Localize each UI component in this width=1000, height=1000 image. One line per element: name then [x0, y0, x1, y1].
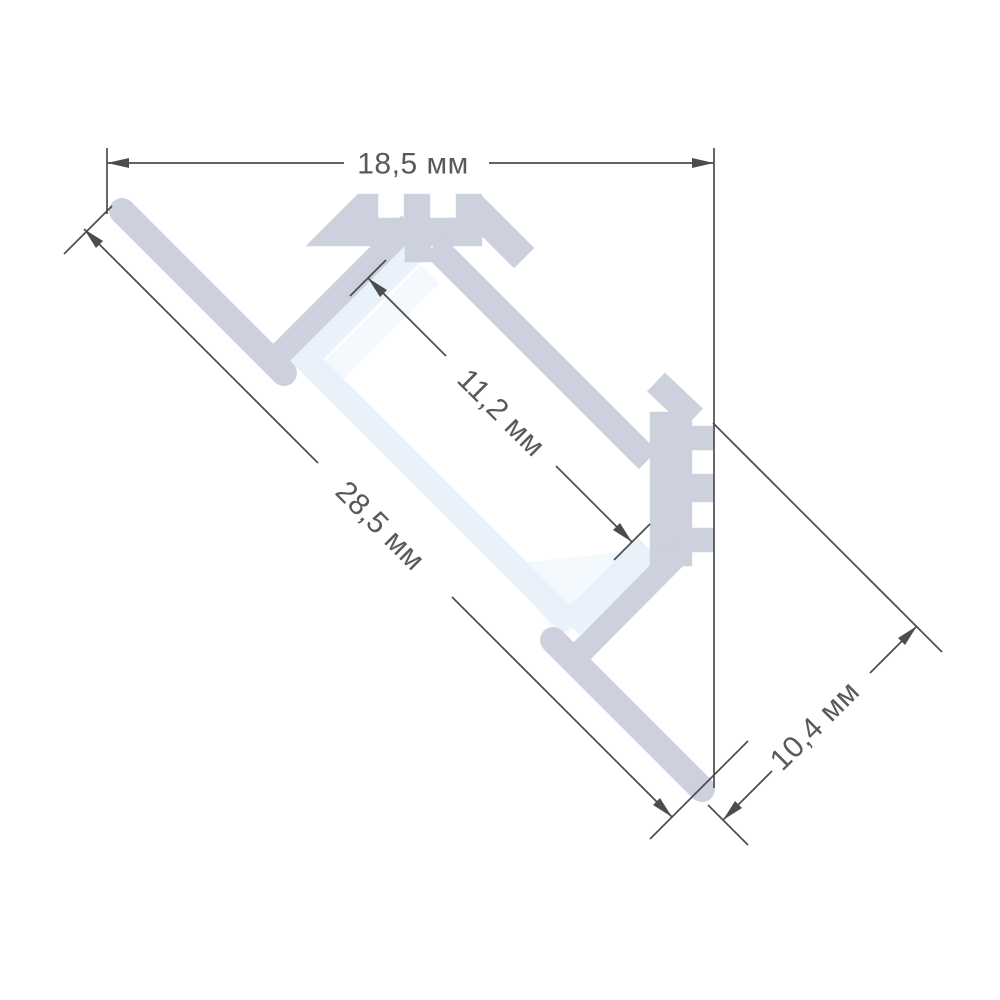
base-leg — [553, 640, 702, 789]
diffuser-main-band — [294, 347, 572, 625]
dim-18-5-arrow-left — [107, 158, 129, 168]
label-side-length: 28,5 мм — [329, 475, 431, 577]
top-comb-slope — [334, 194, 358, 218]
label-opening-width: 11,2 мм — [451, 363, 552, 464]
right-wall — [434, 246, 648, 460]
ext-10-4-upper — [713, 423, 942, 652]
drawing-canvas: 18,5 мм 11,2 мм 28,5 мм 10,4 мм — [0, 0, 1000, 1000]
label-back-height: 10,4 мм — [764, 675, 866, 777]
right-comb-tooth-3 — [692, 528, 714, 552]
label-width-top: 18,5 мм — [357, 148, 468, 181]
top-comb-tooth-2 — [404, 194, 430, 220]
right-comb-tooth-2 — [692, 474, 714, 502]
right-comb-bar — [650, 412, 692, 566]
top-comb-body — [306, 218, 482, 246]
right-comb-tooth-1 — [692, 426, 714, 450]
ext-10-4-lower — [708, 805, 748, 845]
diffuser-cover — [294, 248, 650, 640]
dim-18-5-arrow-right — [692, 158, 714, 168]
top-comb-tooth-1 — [358, 194, 378, 220]
technical-drawing: 18,5 мм 11,2 мм 28,5 мм 10,4 мм — [0, 0, 1000, 1000]
ext-28-5-upper — [64, 206, 112, 254]
